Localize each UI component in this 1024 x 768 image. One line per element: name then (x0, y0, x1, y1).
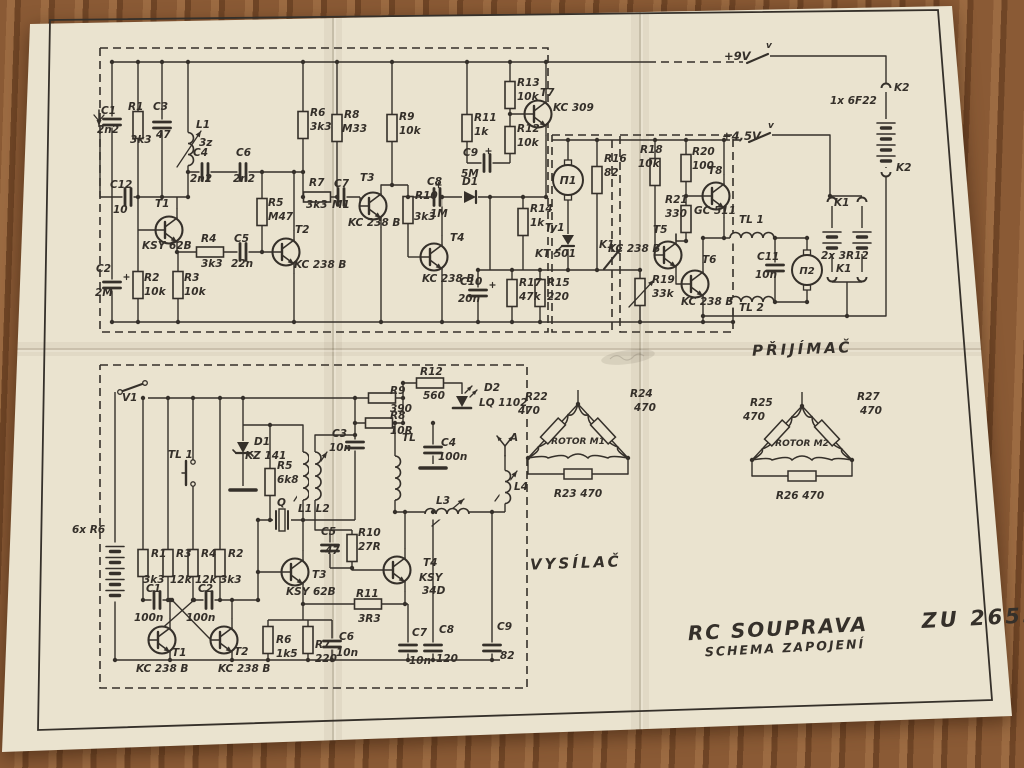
label-2n2: 2n2 (190, 173, 212, 185)
junction-dot (230, 598, 234, 602)
label-R24: R24 (630, 388, 653, 400)
label-3k3: 3k3 (220, 574, 242, 586)
label-C1: C1 (101, 105, 116, 117)
label-C6: C6 (339, 631, 354, 643)
junction-dot (773, 300, 777, 304)
junction-dot (805, 236, 809, 240)
resistor (507, 280, 517, 307)
label-R20: R20 (692, 146, 715, 158)
label-R19: R19 (652, 274, 675, 286)
label-C2: C2 (198, 583, 213, 595)
label-R5: R5 (268, 197, 283, 209)
junction-dot (626, 456, 630, 460)
junction-dot (566, 138, 570, 142)
resistor (592, 167, 602, 194)
label-C3: C3 (153, 101, 168, 113)
junction-dot (403, 510, 407, 514)
label-47: 47 (324, 545, 340, 557)
junction-dot (684, 239, 688, 243)
label-10k: 10k (184, 286, 207, 298)
label-R5: R5 (277, 460, 292, 472)
junction-dot (653, 138, 657, 142)
junction-dot (845, 314, 849, 318)
crystal (279, 509, 285, 531)
receiver-section-label: PŘIJÍMAČ (752, 338, 853, 359)
junction-dot (566, 268, 570, 272)
junction-dot (701, 314, 705, 318)
label-+4,5V: +4,5V (722, 129, 762, 143)
resistor (347, 535, 357, 562)
junction-dot (136, 60, 140, 64)
junction-dot (256, 518, 260, 522)
junction-dot (306, 658, 310, 662)
label-M47: M47 (268, 211, 294, 223)
label-3R3: 3R3 (358, 613, 381, 625)
junction-dot (192, 598, 196, 602)
label-TL-1: TL 1 (739, 214, 764, 226)
junction-dot (850, 458, 854, 462)
junction-dot (241, 396, 245, 400)
label-KC-238-B: KC 238 B (218, 663, 270, 675)
label-T8: T8 (708, 165, 722, 177)
label-47k: 47k (518, 291, 542, 303)
label-R18: R18 (640, 144, 663, 156)
resistor (298, 112, 308, 139)
junction-dot (731, 320, 735, 324)
label-220: 220 (315, 653, 337, 665)
switch-contact (143, 381, 148, 386)
resistor (366, 418, 393, 428)
rotor-resistor (564, 469, 592, 479)
junction-dot (638, 320, 642, 324)
junction-dot (750, 458, 754, 462)
junction-dot (595, 138, 599, 142)
junction-dot (828, 194, 832, 198)
junction-dot (440, 195, 444, 199)
label-470: 470 (859, 405, 882, 417)
label-12k: 12k (170, 574, 193, 586)
label-C9: C9 (463, 147, 478, 159)
inductor-coil (183, 133, 194, 166)
label-R27: R27 (857, 391, 880, 403)
label-GC-511: GC 511 (694, 205, 736, 217)
label-T6: T6 (702, 254, 716, 266)
label-47: 47 (155, 129, 171, 141)
junction-dot (684, 138, 688, 142)
resistor (332, 115, 342, 142)
label-A: A (509, 432, 518, 444)
label-C5: C5 (321, 526, 336, 538)
label-+9V: +9V (724, 49, 752, 63)
label-5M: 5M (461, 168, 479, 180)
label-R26-470: R26 470 (776, 490, 824, 502)
label-C8: C8 (439, 624, 454, 636)
label-R10: R10 (415, 190, 438, 202)
junction-dot (353, 421, 357, 425)
label-R21: R21 (665, 194, 688, 206)
resistor (263, 627, 273, 654)
label-C1: C1 (146, 583, 161, 595)
junction-dot (722, 236, 726, 240)
label-KC-238-B: KC 238 B (136, 663, 188, 675)
label-T1: T1 (155, 198, 169, 210)
junction-dot (508, 112, 512, 116)
label-R1: R1 (151, 548, 166, 560)
resistor (518, 209, 528, 236)
photo-of-schematic: C12n2R13k3C347L13zC1210T1KSY 62BC22MR210… (0, 0, 1024, 768)
resistor (462, 115, 472, 142)
label-82: 82 (500, 650, 515, 662)
label-KC-238-B: KC 238 B (608, 243, 660, 255)
junction-dot (191, 396, 195, 400)
junction-dot (301, 602, 305, 606)
label-R12: R12 (517, 123, 540, 135)
label-R22: R22 (525, 391, 548, 403)
label-KSY-62B: KSY 62B (286, 586, 336, 598)
transmitter-section-label: VYSÍLAČ (530, 552, 622, 573)
junction-dot (335, 60, 339, 64)
label-ROTOR-M2: ROTOR M2 (775, 439, 829, 449)
junction-dot (141, 396, 145, 400)
junction-dot (176, 320, 180, 324)
junction-dot (186, 60, 190, 64)
junction-dot (266, 658, 270, 662)
label-T2: T2 (234, 646, 248, 658)
label-R9: R9 (390, 385, 405, 397)
junction-dot (301, 170, 305, 174)
resistor (215, 550, 225, 577)
resistor (265, 469, 275, 496)
label-TL-2: TL 2 (739, 302, 764, 314)
label-R4: R4 (201, 233, 216, 245)
label-2x-3R12: 2x 3R12 (821, 250, 869, 262)
label-C12: C12 (110, 179, 132, 191)
label-10n: 10n (755, 269, 777, 281)
label-C7: C7 (412, 627, 428, 639)
label-10k: 10k (399, 125, 422, 137)
junction-dot (170, 598, 174, 602)
label-10n: 10n (409, 655, 431, 667)
label-R7: R7 (309, 177, 325, 189)
label-R23-470: R23 470 (554, 488, 602, 500)
junction-dot (136, 320, 140, 324)
junction-dot (773, 236, 777, 240)
label-1k5: 1k5 (276, 648, 298, 660)
label-R3: R3 (184, 272, 199, 284)
junction-dot (110, 320, 114, 324)
junction-dot (544, 60, 548, 64)
label-ROTOR-M1: ROTOR M1 (551, 437, 605, 447)
junction-dot (390, 183, 394, 187)
resistor (387, 115, 397, 142)
label-V1: V1 (122, 392, 137, 404)
junction-dot (256, 570, 260, 574)
resistor (197, 247, 224, 257)
label-R9: R9 (399, 111, 414, 123)
label-34D: 34D (422, 585, 446, 597)
label-R2: R2 (228, 548, 243, 560)
junction-dot (110, 60, 114, 64)
label-560: 560 (423, 390, 445, 402)
junction-dot (292, 170, 296, 174)
label-C8: C8 (427, 176, 442, 188)
junction-dot (218, 396, 222, 400)
label-KSY-62B: KSY 62B (142, 240, 192, 252)
label-TL-1: TL 1 (168, 449, 193, 461)
junction-dot (141, 598, 145, 602)
label-L1: L1 (196, 119, 210, 131)
label-R6: R6 (310, 107, 325, 119)
resistor (173, 272, 183, 299)
label-KT-501: KT 501 (535, 248, 576, 260)
label-L1-L2: L1 L2 (298, 503, 330, 515)
label-T5: T5 (653, 224, 667, 236)
inductor-coil (500, 471, 511, 504)
label-10: 10 (113, 204, 128, 216)
label-KSY: KSY (419, 572, 444, 584)
label-2n2: 2n2 (233, 173, 255, 185)
resistor (133, 272, 143, 299)
label-KC-238-B: KC 238 B (681, 296, 733, 308)
junction-dot (510, 320, 514, 324)
label-R8: R8 (344, 109, 359, 121)
label-D2: D2 (484, 382, 500, 394)
junction-dot (260, 170, 264, 174)
junction-dot (490, 658, 494, 662)
label-KC-238-B: KC 238 B (348, 217, 400, 229)
junction-dot (440, 320, 444, 324)
junction-dot (268, 423, 272, 427)
label-T3: T3 (360, 172, 374, 184)
junction-dot (406, 195, 410, 199)
label-T4: T4 (423, 557, 437, 569)
label-C10: C10 (460, 276, 482, 288)
label-D1: D1 (254, 436, 270, 448)
label-C7: C7 (334, 178, 350, 190)
label-R6: R6 (276, 634, 291, 646)
label-R4: R4 (201, 548, 216, 560)
junction-dot (431, 658, 435, 662)
label-R11: R11 (356, 588, 379, 600)
junction-dot (390, 60, 394, 64)
label-1k: 1k (530, 217, 545, 229)
junction-dot (538, 268, 542, 272)
label-3k3: 3k3 (310, 121, 332, 133)
junction-dot (490, 510, 494, 514)
label-L4: L4 (514, 481, 528, 493)
label-22n: 22n (231, 258, 253, 270)
label-T7: T7 (540, 87, 555, 99)
label-82: 82 (604, 167, 619, 179)
junction-dot (393, 510, 397, 514)
label-R3: R3 (176, 548, 191, 560)
junction-dot (431, 510, 435, 514)
junction-dot (292, 320, 296, 324)
junction-dot (350, 566, 354, 570)
label-R13: R13 (517, 77, 540, 89)
junction-dot (301, 518, 305, 522)
junction-dot (301, 60, 305, 64)
junction-dot (526, 456, 530, 460)
label-C9: C9 (497, 621, 512, 633)
label-K1: K1 (836, 263, 851, 275)
junction-dot (595, 268, 599, 272)
resistor (355, 599, 382, 609)
label-220: 220 (547, 291, 569, 303)
label-10n: 10n (329, 442, 351, 454)
label-C4: C4 (193, 147, 208, 159)
junction-dot (638, 268, 642, 272)
label-33k: 33k (652, 288, 675, 300)
label-R7: R7 (315, 639, 331, 651)
label-10k: 10k (144, 286, 167, 298)
junction-dot (488, 195, 492, 199)
label-C6: C6 (236, 147, 251, 159)
junction-dot (521, 195, 525, 199)
label-T2: T2 (295, 224, 309, 236)
label-470: 470 (517, 405, 540, 417)
resistor (257, 199, 267, 226)
junction-dot (186, 195, 190, 199)
junction-dot (403, 602, 407, 606)
junction-dot (538, 320, 542, 324)
label-K1: K1 (834, 197, 849, 209)
label-470: 470 (742, 411, 765, 423)
junction-dot (431, 421, 435, 425)
resistor (138, 550, 148, 577)
label-C5: C5 (234, 233, 249, 245)
pushbutton-contact (191, 482, 195, 486)
label-R2: R2 (144, 272, 159, 284)
junction-dot (701, 320, 705, 324)
junction-dot (260, 250, 264, 254)
label-2M: 2M (95, 287, 113, 299)
label-Π1: Π1 (560, 174, 577, 187)
junction-dot (701, 236, 705, 240)
label-1M: 1M (430, 208, 448, 220)
junction-dot (301, 195, 305, 199)
label-M33: M33 (342, 123, 367, 135)
junction-dot (166, 396, 170, 400)
label-KC-238-B: KC 238 B (294, 259, 346, 271)
label-27R: 27R (358, 541, 381, 553)
schematic-svg: C12n2R13k3C347L13zC1210T1KSY 62BC22MR210… (0, 0, 1024, 768)
label-R10: R10 (358, 527, 381, 539)
label-R25: R25 (750, 397, 773, 409)
label-R15: R15 (547, 277, 570, 289)
label-100n: 100n (134, 612, 163, 624)
label-100n: 100n (186, 612, 215, 624)
rotor-resistor (788, 471, 816, 481)
label-L3: L3 (436, 495, 450, 507)
junction-dot (353, 396, 357, 400)
label-3k3: 3k3 (130, 134, 152, 146)
label-20n: 20n (458, 293, 480, 305)
junction-dot (544, 195, 548, 199)
junction-dot (113, 658, 117, 662)
label-C2: C2 (96, 263, 111, 275)
label-C4: C4 (441, 437, 456, 449)
resistor (681, 155, 691, 182)
junction-dot (576, 402, 580, 406)
label-R16: R16 (604, 153, 627, 165)
junction-dot (268, 518, 272, 522)
resistor (303, 627, 313, 654)
label-Ty1: Ty1 (545, 222, 565, 234)
label-10k: 10k (517, 137, 540, 149)
label-T3: T3 (312, 569, 326, 581)
resistor (505, 127, 515, 154)
junction-dot (465, 60, 469, 64)
label-100n: 100n (438, 451, 467, 463)
junction-dot (160, 60, 164, 64)
label-R14: R14 (530, 203, 553, 215)
label-120: 120 (436, 653, 458, 665)
label-Π2: Π2 (799, 266, 814, 277)
junction-dot (230, 658, 234, 662)
junction-dot (805, 300, 809, 304)
label-R8: R8 (390, 410, 405, 422)
junction-dot (353, 433, 357, 437)
resistor (505, 82, 515, 109)
label-6x-R6: 6x R6 (72, 524, 105, 536)
label-M1: M1 (332, 199, 350, 211)
label-TL: TL (402, 432, 416, 444)
label-R12: R12 (420, 366, 443, 378)
junction-dot (379, 320, 383, 324)
junction-dot (510, 268, 514, 272)
label-2n2: 2n2 (97, 124, 119, 136)
label-6k8: 6k8 (277, 474, 299, 486)
junction-dot (218, 598, 222, 602)
resistor (417, 378, 444, 388)
label-C11: C11 (757, 251, 779, 263)
label-C3: C3 (332, 428, 347, 440)
junction-dot (476, 268, 480, 272)
junction-dot (800, 404, 804, 408)
label-3k3: 3k3 (201, 258, 223, 270)
label-R11: R11 (474, 112, 497, 124)
label-T4: T4 (450, 232, 464, 244)
model-number: ZU 2653 (921, 603, 1024, 633)
label-1k: 1k (474, 126, 489, 138)
junction-dot (508, 60, 512, 64)
label-K2: K2 (894, 82, 909, 94)
label-10k: 10k (517, 91, 540, 103)
label-R1: R1 (128, 101, 143, 113)
label-10n: 10n (336, 647, 358, 659)
label-3k3: 3k3 (306, 199, 328, 211)
label-1x-6F22: 1x 6F22 (830, 95, 877, 107)
label-T1: T1 (172, 647, 186, 659)
resistor (403, 197, 413, 224)
label-KC-309: KC 309 (553, 102, 594, 114)
junction-dot (476, 320, 480, 324)
label-R17: R17 (519, 277, 542, 289)
junction-dot (136, 195, 140, 199)
label-470: 470 (633, 402, 656, 414)
label-330: 330 (665, 208, 687, 220)
label-Q: Q (277, 497, 286, 509)
label-K2: K2 (896, 162, 911, 174)
junction-dot (256, 598, 260, 602)
label-10k: 10k (638, 158, 661, 170)
